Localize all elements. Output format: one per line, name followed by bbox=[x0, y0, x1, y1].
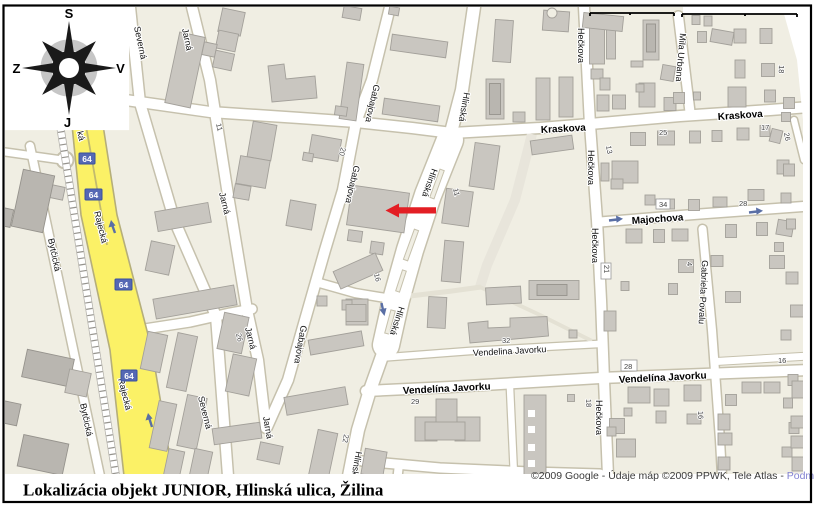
svg-text:S: S bbox=[65, 6, 74, 21]
svg-text:29: 29 bbox=[411, 397, 419, 406]
svg-text:V: V bbox=[116, 61, 125, 76]
svg-text:64: 64 bbox=[82, 154, 92, 164]
svg-text:Hečkova: Hečkova bbox=[576, 28, 586, 63]
svg-text:22: 22 bbox=[341, 434, 351, 444]
svg-text:4: 4 bbox=[685, 262, 694, 266]
svg-text:18: 18 bbox=[777, 65, 786, 74]
svg-text:16: 16 bbox=[778, 356, 786, 365]
svg-text:Hečkova: Hečkova bbox=[586, 150, 596, 185]
svg-text:18: 18 bbox=[584, 399, 593, 408]
svg-text:64: 64 bbox=[124, 371, 134, 381]
svg-text:64: 64 bbox=[119, 280, 129, 290]
svg-text:13: 13 bbox=[604, 145, 614, 155]
svg-text:34: 34 bbox=[659, 200, 667, 209]
svg-text:©2009 Google - Údaje máp ©2009: ©2009 Google - Údaje máp ©2009 PPWK, Tel… bbox=[531, 469, 814, 482]
svg-text:Z: Z bbox=[13, 61, 21, 76]
svg-text:25: 25 bbox=[659, 128, 667, 137]
svg-text:17: 17 bbox=[761, 123, 769, 132]
svg-text:Lokalizácia objekt JUNIOR, Hli: Lokalizácia objekt JUNIOR, Hlinská ulica… bbox=[23, 481, 384, 500]
svg-text:Hečkova: Hečkova bbox=[594, 400, 604, 435]
svg-text:28: 28 bbox=[624, 362, 632, 371]
svg-text:Hečkova: Hečkova bbox=[590, 228, 600, 263]
svg-text:26: 26 bbox=[782, 132, 792, 142]
svg-text:32: 32 bbox=[502, 336, 510, 345]
svg-text:21: 21 bbox=[602, 265, 611, 274]
svg-text:J: J bbox=[64, 115, 71, 130]
svg-text:28: 28 bbox=[739, 199, 747, 208]
svg-text:16: 16 bbox=[696, 411, 705, 420]
svg-text:64: 64 bbox=[89, 190, 99, 200]
